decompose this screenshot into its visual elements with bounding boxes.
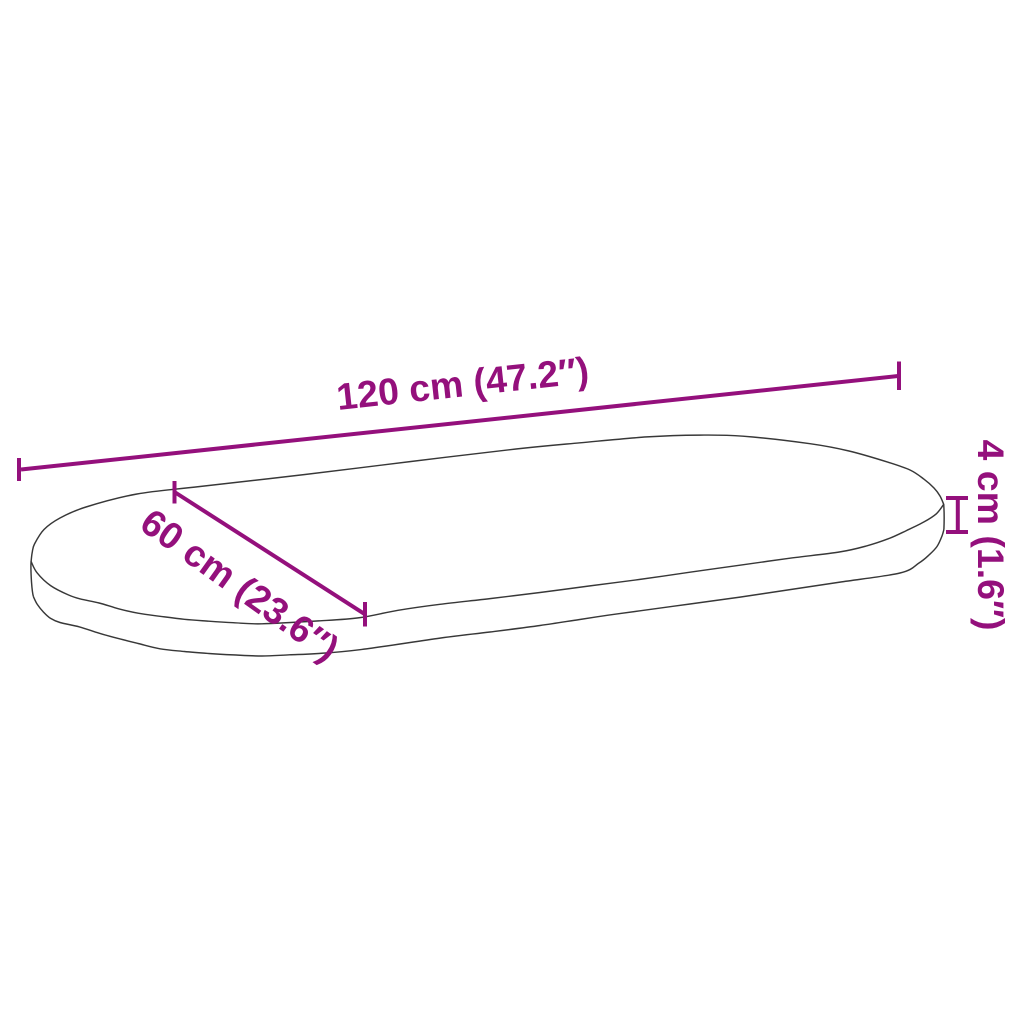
svg-text:4 cm (1.6″): 4 cm (1.6″)	[970, 440, 1012, 631]
